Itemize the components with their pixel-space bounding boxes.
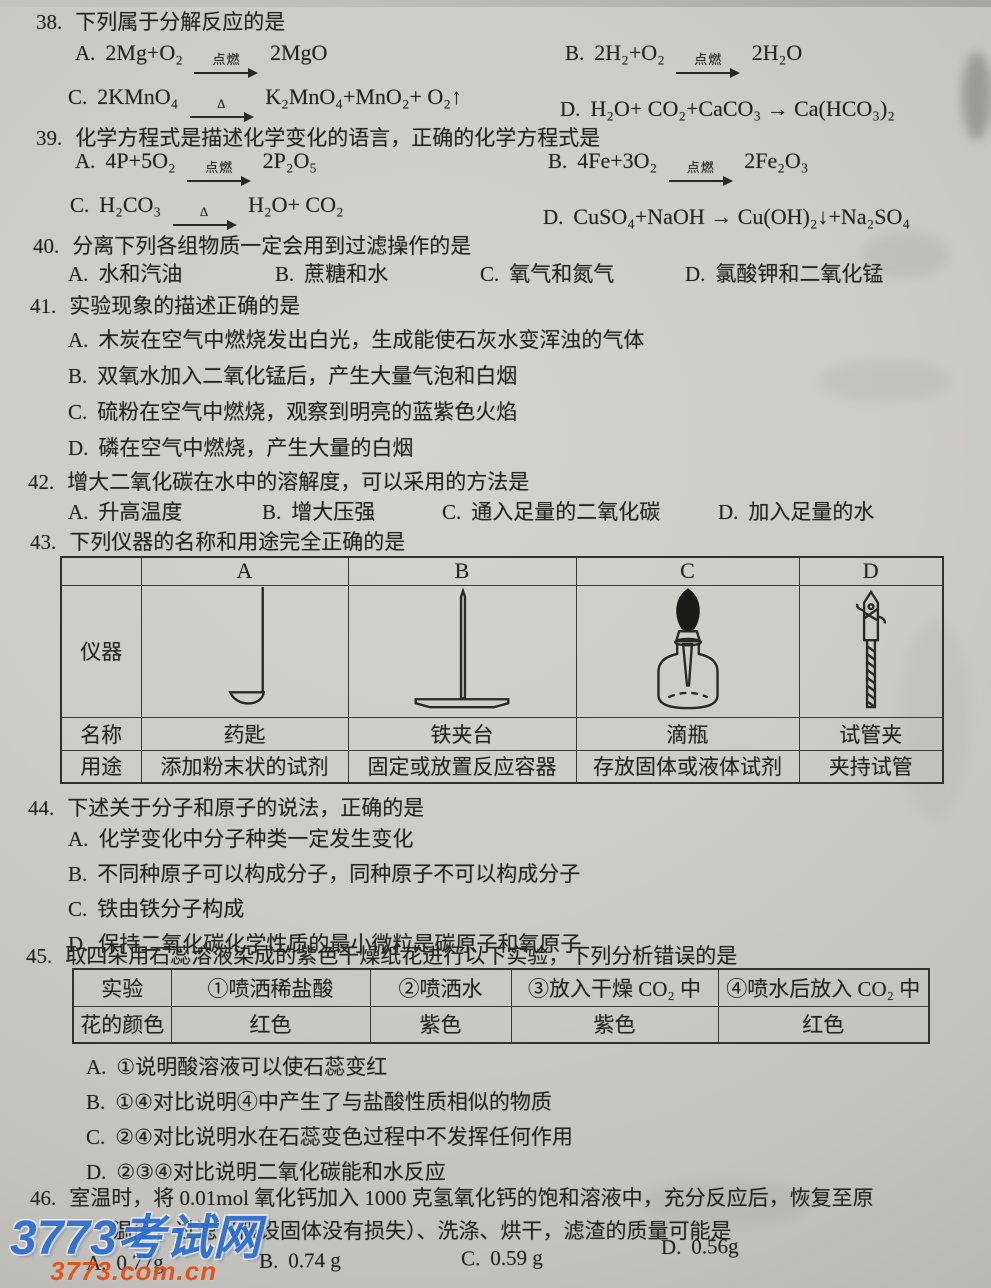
flower-color-cell: 紫色 xyxy=(370,1006,511,1043)
question-text: 化学方程式是描述化学变化的语言，正确的化学方程式是 xyxy=(75,126,600,150)
dropper-bottle-figure xyxy=(576,585,799,717)
option-42-d: D.加入足量的水 xyxy=(718,496,874,526)
instrument-figure-row: 仪器 xyxy=(61,585,943,717)
question-text: 增大二氧化碳在水中的溶解度，可以采用的方法是 xyxy=(67,470,529,494)
option-39-d: D.CuSO₄+NaOH → Cu(OH)₂↓+Na₂SO₄ xyxy=(543,204,910,230)
row-label: 实验 xyxy=(73,969,171,1006)
reaction-arrow: Δ xyxy=(173,205,237,230)
option-label: C. xyxy=(86,1125,105,1149)
experiment-cell: ③放入干燥 CO₂ 中 xyxy=(511,969,718,1006)
option-text: 通入足量的二氧化碳 xyxy=(471,500,660,524)
option-41-a: A.木炭在空气中燃烧发出白光，生成能使石灰水变浑浊的气体 xyxy=(68,322,644,358)
option-label: C. xyxy=(68,400,87,424)
option-label: D. xyxy=(560,97,580,121)
question-number: 44. xyxy=(28,796,54,820)
option-text: 双氧水加入二氧化锰后，产生大量气泡和白烟 xyxy=(97,364,517,388)
option-label: B. xyxy=(68,862,87,886)
column-header: D xyxy=(799,557,943,585)
instrument-name: 铁夹台 xyxy=(348,717,576,750)
iron-stand-figure xyxy=(348,585,576,717)
experiment-row: 实验 ①喷洒稀盐酸 ②喷洒水 ③放入干燥 CO₂ 中 ④喷水后放入 CO₂ 中 xyxy=(73,969,929,1006)
question-number: 40. xyxy=(33,234,59,258)
option-label: A. xyxy=(75,149,95,173)
option-label: D. xyxy=(685,262,705,286)
option-42-b: B.增大压强 xyxy=(262,496,442,526)
option-text: 0.59 g xyxy=(490,1245,543,1270)
scan-smudge xyxy=(820,360,950,402)
site-watermark-url: 3773.com.cn xyxy=(50,1256,217,1287)
option-44-c: C.铁由铁分子构成 xyxy=(68,892,581,927)
option-41-b: B.双氧水加入二氧化锰后，产生大量气泡和白烟 xyxy=(68,358,644,394)
test-tube-clamp-figure xyxy=(799,585,943,717)
experiment-cell: ①喷洒稀盐酸 xyxy=(171,969,370,1006)
option-46-d: D.0.56g xyxy=(661,1234,739,1260)
question-41-title: 41.实验现象的描述正确的是 xyxy=(30,290,300,320)
option-label: B. xyxy=(262,500,281,524)
instrument-use: 存放固体或液体试剂 xyxy=(576,750,799,783)
instrument-name-row: 名称 药匙 铁夹台 滴瓶 试管夹 xyxy=(61,717,943,750)
question-40-options: A.水和汽油 B.蔗糖和水 C.氧气和氮气 D.氯酸钾和二氧化锰 xyxy=(68,258,883,288)
scan-smudge xyxy=(962,52,991,140)
option-text: 升高温度 xyxy=(98,500,182,524)
option-label: A. xyxy=(68,328,88,352)
option-text: 增大压强 xyxy=(291,500,375,524)
option-label: C. xyxy=(68,85,87,109)
option-40-b: B.蔗糖和水 xyxy=(275,258,480,288)
chemical-equation: 2H₂+O₂ 点燃 2H₂O xyxy=(594,40,802,65)
option-45-c: C.②④对比说明水在石蕊变色过程中不发挥任何作用 xyxy=(86,1120,573,1155)
option-label: B. xyxy=(548,149,567,173)
question-44-title: 44.下述关于分子和原子的说法，正确的是 xyxy=(28,792,424,822)
column-header: B xyxy=(348,557,576,585)
option-text: ②③④对比说明二氧化碳能和水反应 xyxy=(116,1160,445,1184)
option-39-a: A.4P+5O₂ 点燃 2P₂O₅ xyxy=(75,148,548,186)
question-text: 分离下列各组物质一定会用到过滤操作的是 xyxy=(72,234,471,258)
option-label: B. xyxy=(565,41,584,65)
row-label: 用途 xyxy=(61,750,141,783)
option-label: A. xyxy=(68,500,88,524)
question-39-options-row-1: A.4P+5O₂ 点燃 2P₂O₅ B.4Fe+3O₂ 点燃 2Fe₂O₃ xyxy=(75,148,808,186)
option-label: C. xyxy=(70,193,89,217)
option-label: A. xyxy=(75,41,95,65)
option-40-a: A.水和汽油 xyxy=(68,258,275,288)
option-42-c: C.通入足量的二氧化碳 xyxy=(442,496,718,526)
flower-color-row: 花的颜色 红色 紫色 紫色 红色 xyxy=(73,1006,929,1043)
medicine-spoon-figure xyxy=(141,585,348,717)
option-text: 化学变化中分子种类一定发生变化 xyxy=(98,827,413,851)
option-45-b: B.①④对比说明④中产生了与盐酸性质相似的物质 xyxy=(86,1085,573,1120)
chemical-equation: CuSO₄+NaOH → Cu(OH)₂↓+Na₂SO₄ xyxy=(573,204,910,229)
option-text: ②④对比说明水在石蕊变色过程中不发挥任何作用 xyxy=(115,1125,573,1149)
option-text: 0.56g xyxy=(691,1234,739,1259)
chemical-equation: 2KMnO₄ Δ K₂MnO₄+MnO₂+ O₂↑ xyxy=(97,84,462,109)
option-text: 氯酸钾和二氧化锰 xyxy=(715,262,883,286)
litmus-experiment-table: 实验 ①喷洒稀盐酸 ②喷洒水 ③放入干燥 CO₂ 中 ④喷水后放入 CO₂ 中 … xyxy=(72,968,930,1044)
option-39-c: C.H₂CO₃ Δ H₂O+ CO₂ xyxy=(70,192,543,230)
option-39-b: B.4Fe+3O₂ 点燃 2Fe₂O₃ xyxy=(548,148,808,186)
reaction-arrow: 点燃 xyxy=(669,161,733,186)
question-text: 取四朵用石蕊溶液染成的紫色干燥纸花进行以下实验，下列分析错误的是 xyxy=(65,944,737,968)
option-label: C. xyxy=(461,1246,481,1270)
option-38-a: A.2Mg+O₂ 点燃 2MgO xyxy=(75,40,565,78)
option-label: B. xyxy=(275,262,294,286)
question-number: 45. xyxy=(26,944,52,968)
option-label: D. xyxy=(718,500,738,524)
question-45-options: A.①说明酸溶液可以使石蕊变红 B.①④对比说明④中产生了与盐酸性质相似的物质 … xyxy=(86,1050,573,1190)
flower-color-cell: 红色 xyxy=(171,1006,370,1043)
option-label: C. xyxy=(442,500,461,524)
question-number: 39. xyxy=(36,126,62,150)
question-41-options: A.木炭在空气中燃烧发出白光，生成能使石灰水变浑浊的气体 B.双氧水加入二氧化锰… xyxy=(68,322,644,466)
option-text: 加入足量的水 xyxy=(748,500,874,524)
option-38-d: D.H₂O+ CO₂+CaCO₃ → Ca(HCO₃)₂ xyxy=(560,96,895,122)
row-label: 仪器 xyxy=(61,585,141,717)
question-38-title: 38.下列属于分解反应的是 xyxy=(36,6,285,36)
question-number: 43. xyxy=(30,530,56,554)
option-41-d: D.磷在空气中燃烧，产生大量的白烟 xyxy=(68,430,644,466)
option-label: B. xyxy=(86,1090,105,1114)
option-label: A. xyxy=(68,262,88,286)
reaction-arrow: 点燃 xyxy=(194,53,258,78)
empty-cell xyxy=(61,557,141,585)
chemical-equation: H₂CO₃ Δ H₂O+ CO₂ xyxy=(99,192,343,217)
table-header-row: A B C D xyxy=(61,557,943,585)
instrument-name: 试管夹 xyxy=(799,717,943,750)
option-label: D. xyxy=(661,1235,682,1259)
option-label: B. xyxy=(68,364,87,388)
option-text: 木炭在空气中燃烧发出白光，生成能使石灰水变浑浊的气体 xyxy=(98,328,644,352)
question-text: 下述关于分子和原子的说法，正确的是 xyxy=(67,796,424,820)
option-text: 铁由铁分子构成 xyxy=(97,897,244,921)
question-text: 实验现象的描述正确的是 xyxy=(69,294,300,318)
option-text: 0.74 g xyxy=(288,1248,341,1273)
option-label: D. xyxy=(86,1160,106,1184)
reaction-arrow: 点燃 xyxy=(676,53,740,78)
instrument-table: A B C D 仪器 xyxy=(60,556,944,784)
question-number: 42. xyxy=(28,470,54,494)
option-label: A. xyxy=(86,1055,106,1079)
option-text: 磷在空气中燃烧，产生大量的白烟 xyxy=(98,436,413,460)
question-text: 下列仪器的名称和用途完全正确的是 xyxy=(69,530,405,554)
question-42-options: A.升高温度 B.增大压强 C.通入足量的二氧化碳 D.加入足量的水 xyxy=(68,496,874,526)
option-text: 硫粉在空气中燃烧，观察到明亮的蓝紫色火焰 xyxy=(97,400,517,424)
option-text: ①④对比说明④中产生了与盐酸性质相似的物质 xyxy=(115,1090,552,1114)
instrument-use: 固定或放置反应容器 xyxy=(348,750,576,783)
option-38-c: C.2KMnO₄ Δ K₂MnO₄+MnO₂+ O₂↑ xyxy=(68,84,560,122)
instrument-name: 滴瓶 xyxy=(576,717,799,750)
option-38-b: B.2H₂+O₂ 点燃 2H₂O xyxy=(565,40,802,78)
option-text: 氧气和氮气 xyxy=(509,262,614,286)
option-label: C. xyxy=(68,897,87,921)
question-number: 41. xyxy=(30,294,56,318)
instrument-name: 药匙 xyxy=(141,717,348,750)
column-header: C xyxy=(576,557,799,585)
option-45-a: A.①说明酸溶液可以使石蕊变红 xyxy=(86,1050,573,1085)
instrument-use: 夹持试管 xyxy=(799,750,943,783)
option-46-b: B.0.74 g xyxy=(259,1246,461,1273)
option-40-c: C.氧气和氮气 xyxy=(480,258,685,288)
option-label: B. xyxy=(259,1249,279,1273)
row-label: 花的颜色 xyxy=(73,1006,171,1043)
row-label: 名称 xyxy=(61,717,141,750)
question-40-title: 40.分离下列各组物质一定会用到过滤操作的是 xyxy=(33,230,471,260)
question-39-options-row-2: C.H₂CO₃ Δ H₂O+ CO₂ D.CuSO₄+NaOH → Cu(OH)… xyxy=(70,192,910,230)
option-text: 水和汽油 xyxy=(98,262,182,286)
question-42-title: 42.增大二氧化碳在水中的溶解度，可以采用的方法是 xyxy=(28,466,529,496)
chemical-equation: H₂O+ CO₂+CaCO₃ → Ca(HCO₃)₂ xyxy=(590,96,895,121)
option-label: A. xyxy=(68,827,88,851)
question-38-options-row-2: C.2KMnO₄ Δ K₂MnO₄+MnO₂+ O₂↑ D.H₂O+ CO₂+C… xyxy=(68,84,895,122)
option-label: C. xyxy=(480,262,499,286)
experiment-cell: ④喷水后放入 CO₂ 中 xyxy=(718,969,929,1006)
question-45-title: 45.取四朵用石蕊溶液染成的紫色干燥纸花进行以下实验，下列分析错误的是 xyxy=(26,940,737,970)
question-38-options-row-1: A.2Mg+O₂ 点燃 2MgO B.2H₂+O₂ 点燃 2H₂O xyxy=(75,40,802,78)
option-40-d: D.氯酸钾和二氧化锰 xyxy=(685,258,883,288)
instrument-use-row: 用途 添加粉末状的试剂 固定或放置反应容器 存放固体或液体试剂 夹持试管 xyxy=(61,750,943,783)
instrument-use: 添加粉末状的试剂 xyxy=(141,750,348,783)
option-label: D. xyxy=(68,436,88,460)
flower-color-cell: 红色 xyxy=(718,1006,929,1043)
reaction-arrow: Δ xyxy=(190,97,254,122)
option-text: ①说明酸溶液可以使石蕊变红 xyxy=(116,1055,387,1079)
question-text: 下列属于分解反应的是 xyxy=(75,10,285,34)
option-41-c: C.硫粉在空气中燃烧，观察到明亮的蓝紫色火焰 xyxy=(68,394,644,430)
question-number: 38. xyxy=(36,10,62,34)
option-text: 不同种原子可以构成分子，同种原子不可以构成分子 xyxy=(97,862,580,886)
option-44-b: B.不同种原子可以构成分子，同种原子不可以构成分子 xyxy=(68,857,581,892)
option-text: 蔗糖和水 xyxy=(304,262,388,286)
scanned-exam-page: 38.下列属于分解反应的是 A.2Mg+O₂ 点燃 2MgO B.2H₂+O₂ … xyxy=(0,0,991,1288)
column-header: A xyxy=(141,557,348,585)
option-42-a: A.升高温度 xyxy=(68,496,262,526)
reaction-arrow: 点燃 xyxy=(187,161,251,186)
option-44-a: A.化学变化中分子种类一定发生变化 xyxy=(68,822,581,857)
option-46-c: C.0.59 g xyxy=(461,1244,661,1271)
chemical-equation: 4P+5O₂ 点燃 2P₂O₅ xyxy=(105,148,317,173)
flower-color-cell: 紫色 xyxy=(511,1006,718,1043)
question-43-title: 43.下列仪器的名称和用途完全正确的是 xyxy=(30,526,405,556)
chemical-equation: 4Fe+3O₂ 点燃 2Fe₂O₃ xyxy=(577,148,808,173)
experiment-cell: ②喷洒水 xyxy=(370,969,511,1006)
chemical-equation: 2Mg+O₂ 点燃 2MgO xyxy=(105,40,327,65)
option-label: D. xyxy=(543,205,563,229)
